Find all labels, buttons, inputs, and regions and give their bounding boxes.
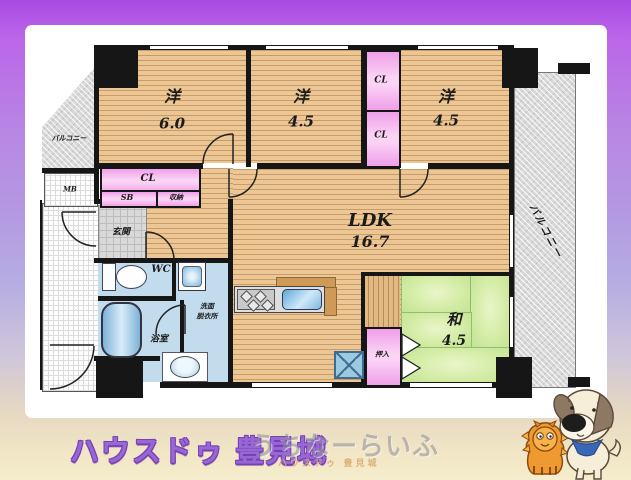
tatami-4	[401, 347, 511, 385]
senmen-label-1: 洗面	[200, 303, 214, 310]
bath-label: 浴室	[150, 336, 168, 345]
toilet-tank	[102, 263, 116, 291]
pillar-top-right	[502, 48, 538, 88]
window-western1	[150, 45, 228, 50]
room-japanese-name: 和	[446, 313, 461, 328]
washing-machine	[178, 262, 206, 291]
wc-label: WC	[151, 265, 170, 275]
window-washitsu-south	[410, 382, 492, 388]
room-japanese-area: 4.5	[442, 334, 466, 348]
closet-shuno-label: 収納	[169, 194, 183, 201]
common-corridor	[42, 203, 101, 392]
room-western3-name: 洋	[438, 89, 454, 105]
wall-washitsu-top	[361, 272, 509, 276]
room-western3-floor	[399, 50, 509, 163]
wall-w1-w2	[246, 45, 251, 167]
room-western2-area: 4.5	[288, 115, 314, 130]
basin-bowl	[170, 356, 200, 378]
balcony-left-label: バルコニー	[52, 135, 87, 142]
tatami-1	[401, 275, 472, 314]
hall-floor-lower	[145, 203, 197, 260]
room-western2-floor	[251, 50, 361, 163]
window-western3	[418, 45, 498, 50]
pillar-bottom-right	[496, 357, 532, 398]
window-ldk-south	[252, 382, 332, 388]
window-western2	[266, 45, 348, 50]
pillar-bottom-left	[96, 358, 143, 398]
pillar-balcony-bottom	[568, 377, 590, 387]
closet-cl-hall-label: CL	[141, 174, 156, 184]
kitchen-sink	[282, 289, 322, 310]
shisa-mascot-icon	[522, 421, 568, 475]
room-western1-area: 6.0	[159, 117, 185, 132]
balcony-door-ldk	[509, 215, 514, 267]
closet-oshiire-label: 押入	[375, 351, 389, 358]
closet-cl-lower-label: CL	[374, 132, 388, 141]
wall-ldk-left	[228, 199, 233, 388]
wall-wc-senmen	[172, 258, 176, 300]
kitchen-counter-side	[324, 287, 337, 316]
hatch-box	[334, 351, 364, 379]
senmen-label-2: 脱衣所	[197, 313, 218, 320]
genkan-label: 玄関	[112, 229, 130, 238]
wall-corridor-edge	[40, 200, 42, 390]
wall-bath-senmen	[180, 300, 184, 352]
floor-plan-image: 洋 6.0 洋 4.5 洋 4.5 LDK 16.7 和 4.5 CL CL C…	[0, 0, 631, 480]
washing-machine-drum	[182, 266, 202, 287]
stove	[237, 289, 275, 310]
stove-burner	[261, 299, 274, 312]
meter-box-label: MB	[63, 186, 77, 193]
pillar-top-left	[96, 48, 138, 88]
closet-cl-upper-label: CL	[374, 77, 388, 86]
room-western3-area: 4.5	[433, 114, 459, 129]
room-ldk-area: 16.7	[351, 234, 390, 250]
room-western1-name: 洋	[164, 89, 180, 105]
wall-wc-bath	[98, 296, 176, 301]
pillar-balcony-top	[558, 63, 590, 74]
plank-strip	[363, 274, 400, 327]
wall-mid-c	[428, 163, 514, 169]
balcony-door-washitsu	[509, 297, 514, 347]
tatami-2	[470, 275, 511, 349]
room-ldk-name: LDK	[348, 212, 392, 230]
toilet-bowl	[116, 265, 147, 289]
watermark-subtext: ハウスドゥ 豊見城	[278, 456, 380, 469]
wall-balcony-left-bottom	[42, 168, 99, 173]
closet-sb-label: SB	[121, 193, 134, 201]
bathtub	[101, 302, 142, 358]
room-western2-name: 洋	[293, 89, 309, 105]
